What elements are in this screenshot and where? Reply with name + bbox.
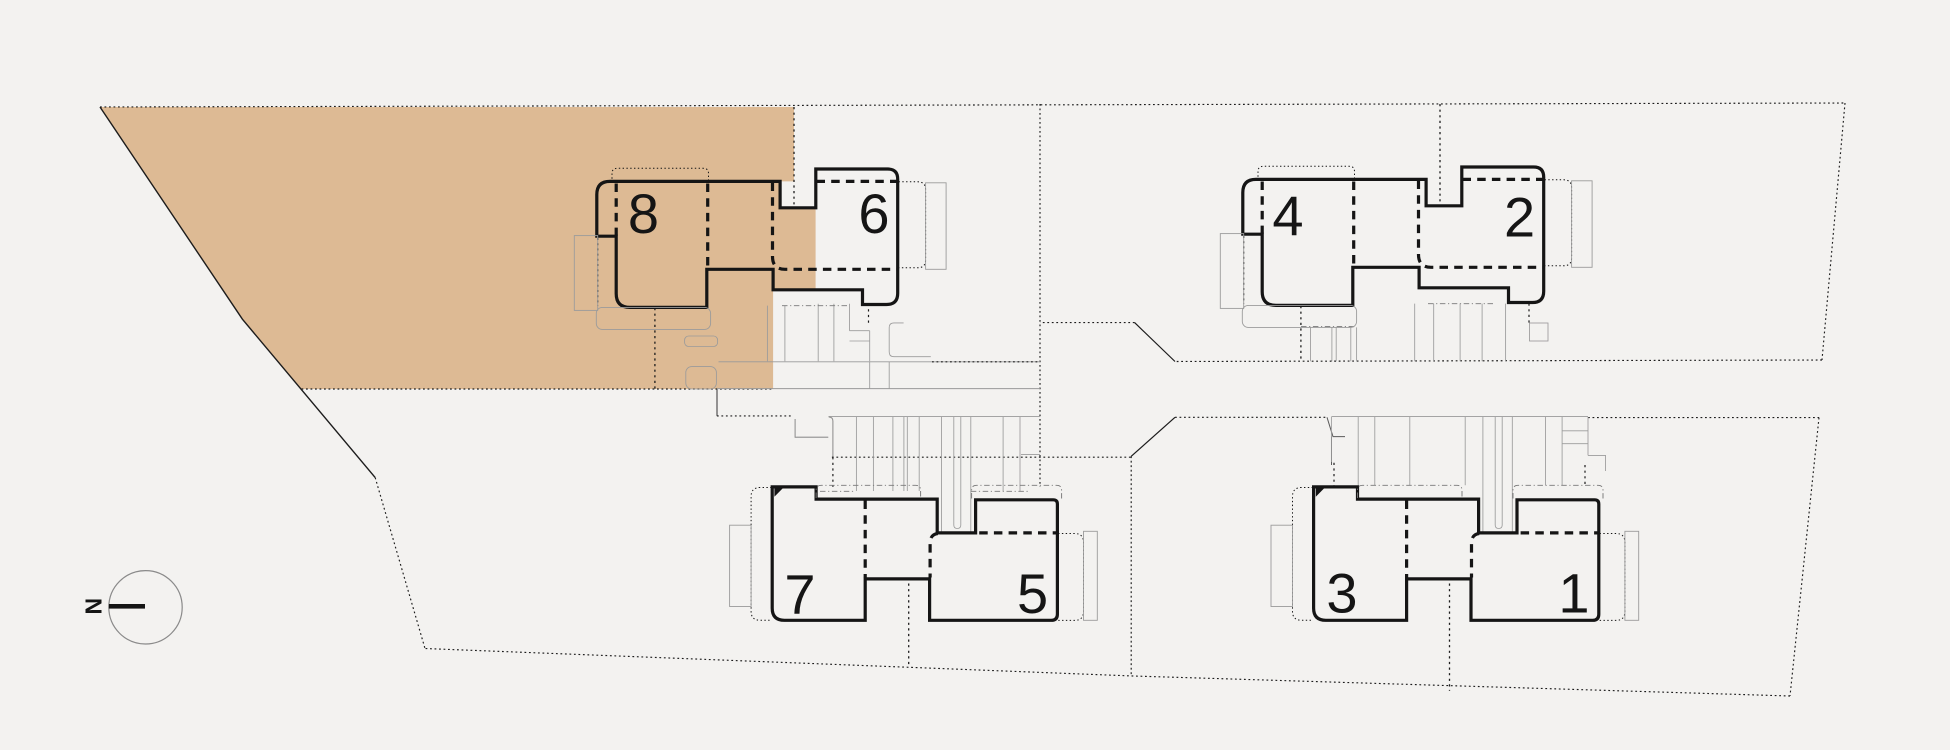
svg-text:3: 3 xyxy=(1326,561,1357,624)
svg-text:8: 8 xyxy=(628,182,659,245)
svg-text:4: 4 xyxy=(1272,184,1303,247)
svg-text:2: 2 xyxy=(1504,185,1535,248)
svg-text:N: N xyxy=(81,598,107,615)
svg-text:7: 7 xyxy=(784,562,815,625)
svg-text:5: 5 xyxy=(1017,562,1048,625)
svg-text:6: 6 xyxy=(858,182,889,245)
svg-text:1: 1 xyxy=(1558,561,1589,624)
